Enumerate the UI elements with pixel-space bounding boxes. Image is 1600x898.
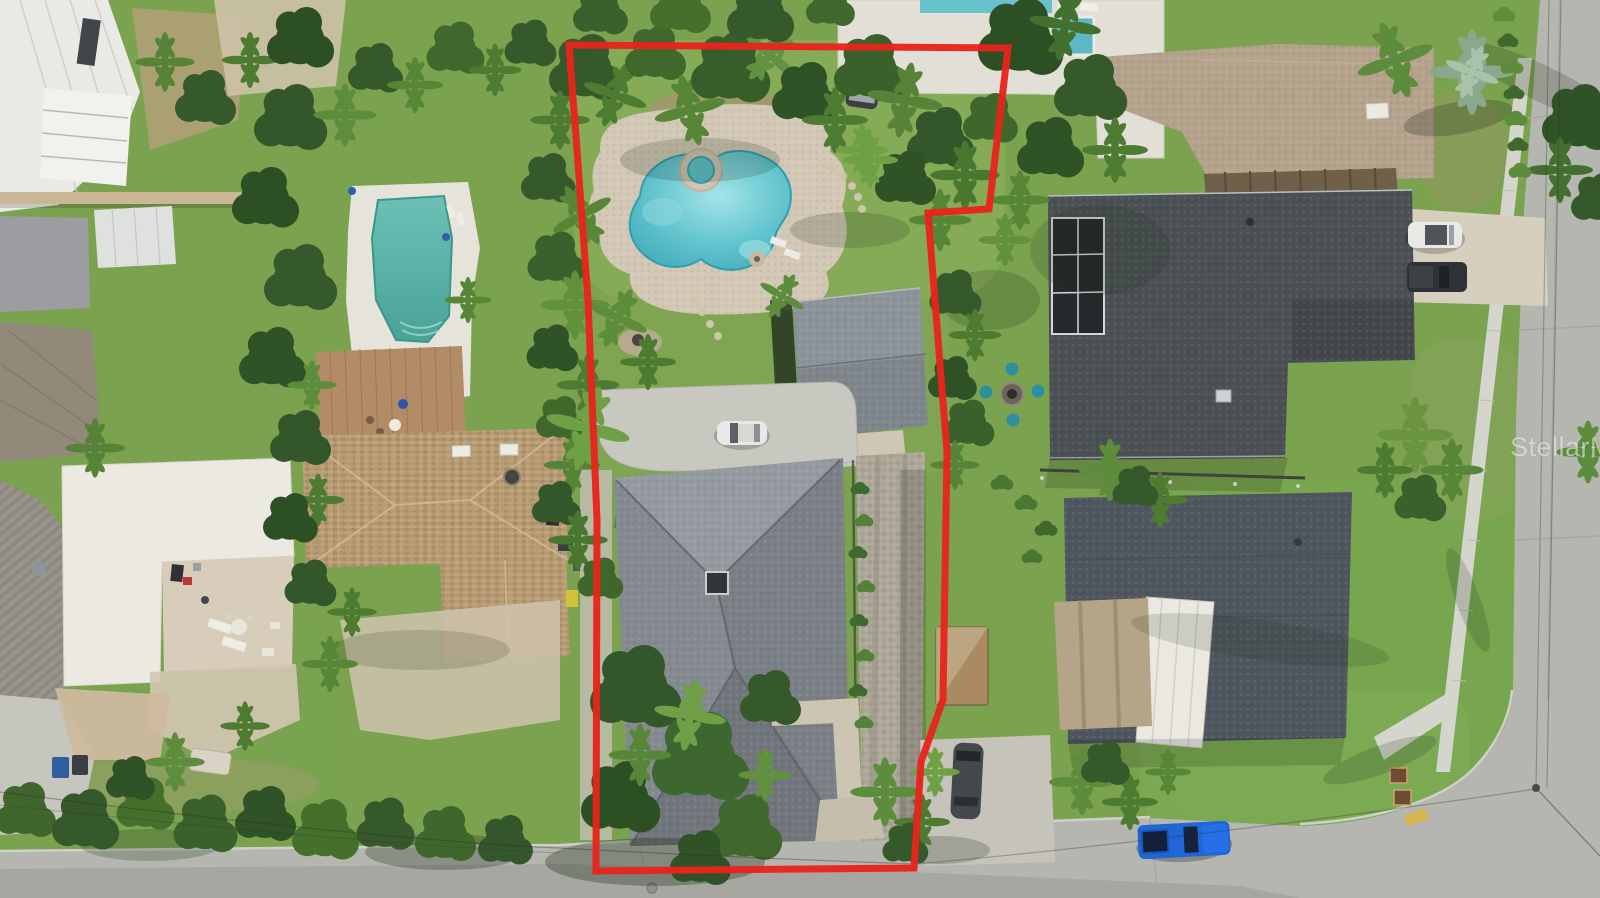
teal-chair (1006, 363, 1019, 376)
patio-table (231, 619, 247, 635)
grill (170, 564, 184, 582)
dark-bin (72, 755, 88, 775)
blue-bin (52, 757, 69, 778)
teal-chair (980, 386, 993, 399)
roof-vent (1366, 103, 1389, 119)
aerial-photo: StellarMLS (0, 0, 1600, 898)
aerial-scene (0, 0, 1600, 898)
tree-canopy (806, 0, 855, 26)
dark-truck-neighbor (1407, 262, 1467, 292)
pool-float (348, 187, 356, 195)
yellow-equipment (566, 590, 578, 607)
deck-chair (398, 399, 408, 409)
skylight (452, 445, 470, 457)
patio-chair (226, 613, 232, 619)
patio-chair (247, 615, 253, 621)
tree-canopy (650, 0, 711, 33)
patio-item (262, 648, 274, 656)
roof-vent (1294, 538, 1302, 546)
teal-chair (1032, 385, 1045, 398)
pool-shallow (642, 198, 682, 226)
pool-float (442, 233, 450, 241)
deck-table (389, 419, 401, 431)
white-suv-neighbor (1405, 222, 1465, 254)
red-cooler (183, 577, 192, 585)
retaining-wall (0, 192, 268, 204)
skylight (500, 444, 518, 455)
skylight (1216, 390, 1231, 402)
dark-car-driveway (950, 742, 984, 819)
shell-drive (55, 688, 170, 760)
lounger (1079, 2, 1098, 12)
stone-table-center (754, 256, 760, 262)
white-car-subject (714, 421, 770, 450)
utility-box (1394, 790, 1411, 805)
patio-item (201, 596, 209, 604)
roof-vent (1246, 218, 1254, 226)
chimney (706, 572, 728, 594)
sand-patio (340, 600, 560, 740)
patio-item (193, 563, 201, 571)
teal-chair (1007, 414, 1020, 427)
fire-pit-center (1007, 389, 1017, 399)
deck-chair (366, 416, 374, 424)
roof-vent (504, 469, 520, 485)
roof-vent (32, 562, 46, 576)
mls-watermark: StellarMLS (1510, 432, 1600, 463)
utility-box (1390, 768, 1407, 783)
patio-item (270, 622, 280, 629)
utility-pole (1532, 784, 1540, 792)
gray-roof (0, 216, 90, 312)
